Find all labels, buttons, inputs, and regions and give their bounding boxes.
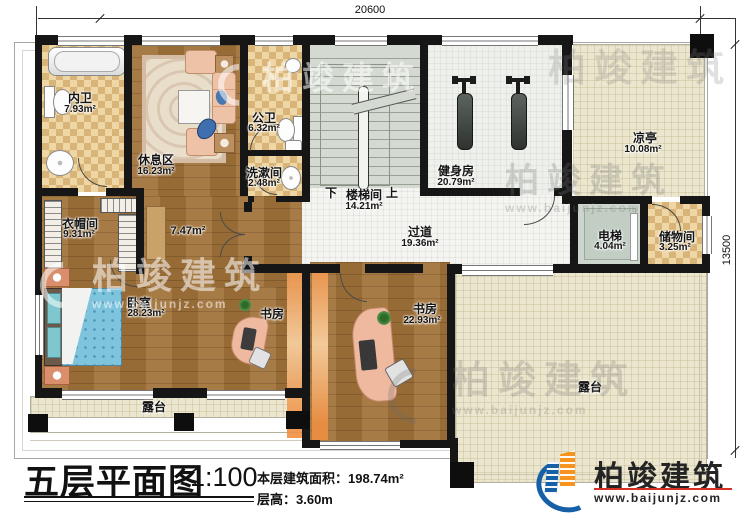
window — [702, 216, 712, 254]
wall — [276, 196, 302, 202]
room-area-guodao: 19.36m² — [401, 239, 438, 249]
side-table — [214, 133, 235, 153]
room-label-loutijian: 楼梯间 — [346, 189, 382, 201]
sofa-top — [185, 50, 217, 74]
wall — [640, 202, 648, 264]
hall-floor-glow — [312, 266, 328, 440]
wall — [447, 264, 455, 448]
wall — [220, 35, 255, 45]
nightstand — [44, 366, 70, 385]
wall — [136, 196, 144, 274]
wall — [244, 202, 252, 212]
logo-mark-icon — [534, 448, 590, 508]
floor-area-text: 本层建筑面积：198.74m² — [257, 468, 404, 487]
column — [450, 462, 474, 488]
terrace-left-edge — [30, 440, 302, 441]
room-area-jianshenfang: 20.79m² — [437, 178, 474, 188]
sink-icon — [285, 58, 301, 73]
stairs-up-label: 上 — [386, 187, 398, 199]
pavilion-edge — [573, 44, 705, 45]
column — [690, 34, 714, 58]
right-dimension-label: 13500 — [721, 215, 733, 285]
room-area-xiuxiqu: 16.23m² — [137, 167, 174, 177]
side-table — [215, 55, 234, 73]
wall — [124, 35, 142, 45]
room-label-guodao: 过道 — [408, 226, 432, 238]
window — [562, 75, 574, 130]
window — [462, 265, 553, 276]
room-label-neiwei: 内卫 — [68, 92, 92, 104]
wall — [553, 264, 710, 273]
logo-website: www.baijunjz.com — [594, 491, 722, 505]
wall — [570, 196, 578, 272]
nightstand — [44, 268, 70, 287]
window — [255, 36, 293, 46]
window — [142, 36, 220, 46]
wall — [35, 35, 42, 295]
wall — [242, 264, 340, 273]
top-dimension-label: 20600 — [340, 4, 400, 16]
monitor-icon — [358, 339, 377, 371]
bathtub-basin — [54, 51, 120, 72]
room-label-lutai-right: 露台 — [578, 381, 602, 393]
window — [35, 295, 44, 355]
wall — [455, 264, 462, 274]
wall — [554, 188, 562, 196]
plant-icon — [376, 310, 392, 326]
room-area-neiwei: 7.93m² — [64, 105, 96, 115]
window — [335, 36, 387, 46]
wardrobe — [100, 198, 138, 213]
elevator-door — [630, 213, 638, 261]
floor-height-text: 层高：3.60m — [257, 489, 333, 508]
terrace-right-inner-edge — [461, 274, 700, 475]
dim-extension — [700, 6, 701, 36]
right-dimension-line — [735, 18, 736, 458]
wall — [562, 35, 572, 75]
pavilion-floor — [573, 45, 704, 197]
wall — [302, 45, 310, 202]
sink-icon — [46, 150, 74, 176]
room-area-shufang-large: 22.93m² — [403, 316, 440, 326]
logo-red-line — [594, 488, 732, 490]
wall — [420, 188, 520, 196]
column — [28, 414, 48, 432]
plant-icon — [238, 298, 252, 312]
room-label-liangting: 凉亭 — [633, 132, 657, 144]
wall — [293, 35, 335, 45]
window — [58, 36, 124, 46]
sink-icon — [281, 166, 301, 190]
room-area-yimaojian: 9.31m² — [63, 230, 95, 240]
room-area-loutijian: 14.21m² — [345, 202, 382, 212]
top-dimension-line — [38, 18, 735, 19]
column — [286, 411, 310, 429]
title-underline — [24, 501, 254, 502]
room-area-passage: 7.47m² — [171, 226, 206, 237]
window — [62, 390, 153, 400]
room-label-lutai-left: 露台 — [142, 401, 166, 413]
wall — [35, 388, 62, 398]
headboard-cushion — [47, 293, 61, 324]
room-label-shufang-small: 书房 — [260, 308, 284, 320]
wall — [702, 196, 710, 216]
gym-machine-icon — [506, 76, 530, 148]
wall — [400, 440, 450, 448]
room-label-shufang-large: 书房 — [413, 303, 437, 315]
wall — [106, 188, 144, 196]
stair-opening-outline — [320, 64, 390, 186]
room-area-xishujian: 2.48m² — [248, 179, 280, 189]
room-area-dianti: 4.04m² — [594, 242, 626, 252]
window — [320, 441, 400, 450]
headboard-cushion — [47, 327, 61, 358]
room-area-liangting: 10.08m² — [624, 145, 661, 155]
window — [442, 36, 538, 46]
wall — [450, 438, 458, 464]
wall — [302, 440, 320, 448]
wall — [153, 388, 207, 398]
dresser — [146, 206, 166, 260]
company-logo: 柏竣建筑 www.baijunjz.com — [534, 448, 734, 510]
wall — [124, 45, 132, 188]
room-area-woshi: 28.23m² — [127, 309, 164, 319]
wall — [387, 35, 442, 45]
wall — [420, 45, 428, 196]
room-area-chuwujian: 3.25m² — [659, 243, 691, 253]
pavilion-edge — [704, 44, 705, 198]
room-label-xiuxiqu: 休息区 — [138, 154, 174, 166]
gym-machine-icon — [452, 76, 476, 148]
title-underline — [24, 496, 254, 498]
room-area-gongwei: 6.32m² — [248, 124, 280, 134]
window — [207, 390, 285, 400]
title-scale: 1:100 — [190, 462, 258, 493]
wall — [562, 130, 572, 202]
wall — [365, 264, 423, 273]
room-label-jianshenfang: 健身房 — [438, 165, 474, 177]
wall — [35, 188, 78, 196]
column — [174, 413, 194, 431]
stairs-down-label: 下 — [325, 187, 337, 199]
terrace-left-edge — [30, 432, 302, 433]
floor-plan-canvas: 20600 13500 — [0, 0, 750, 517]
